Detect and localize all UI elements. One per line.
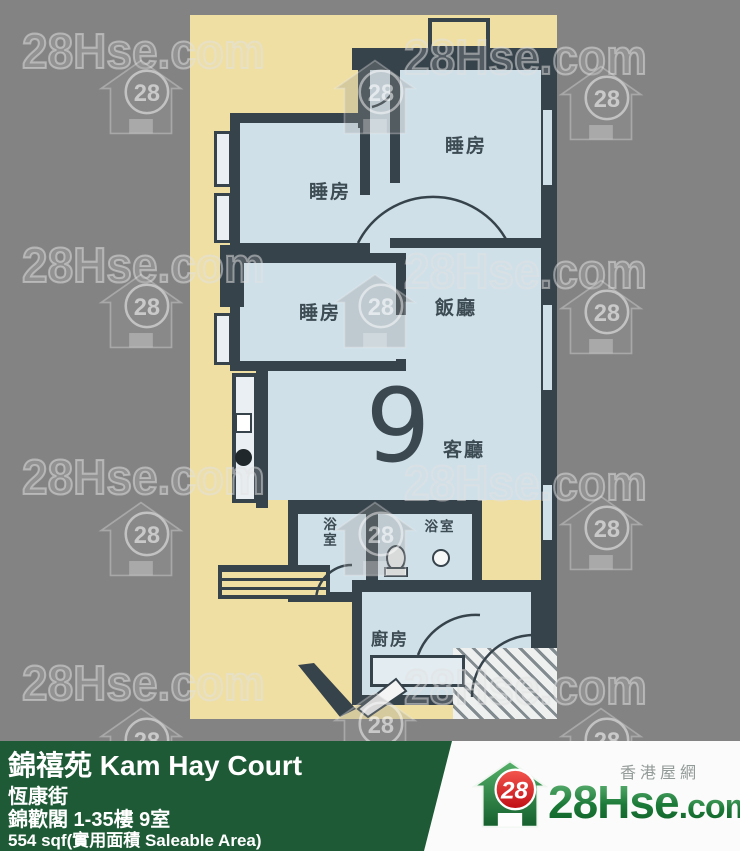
bedroom-2-door-arc bbox=[358, 197, 508, 243]
watermark-house-icon: 28 bbox=[98, 58, 184, 136]
site-branding: 28 香港屋網 28Hse.com bbox=[460, 741, 740, 851]
watermark-house-icon: 28 bbox=[98, 272, 184, 350]
svg-text:28: 28 bbox=[134, 729, 160, 741]
svg-text:28: 28 bbox=[134, 81, 160, 107]
property-info-bar: 錦禧苑 Kam Hay Court 恆康街 錦歡閣 1-35樓 9室 554 s… bbox=[0, 741, 452, 851]
watermark-house-icon: 28 bbox=[558, 494, 644, 572]
watermark-house-icon: 28 bbox=[558, 278, 644, 356]
property-title: 錦禧苑 Kam Hay Court bbox=[8, 744, 302, 784]
kitchen-door-arc bbox=[418, 615, 480, 655]
svg-text:28: 28 bbox=[594, 517, 620, 543]
watermark-house-icon: 28 bbox=[558, 64, 644, 142]
site-logo-text: 28Hse.com bbox=[548, 775, 740, 829]
watermark-house-icon: 28 bbox=[98, 706, 184, 741]
svg-text:28: 28 bbox=[500, 778, 529, 805]
page: 睡房 睡房 睡房 飯廳 客廳 廚房 浴室 浴室 9 28Hse.com 28Hs… bbox=[0, 0, 740, 851]
property-area: 554 sqf(實用面積 Saleable Area) bbox=[8, 826, 262, 851]
door-arcs-overlay bbox=[190, 15, 557, 719]
floor-plan-image: 睡房 睡房 睡房 飯廳 客廳 廚房 浴室 浴室 9 bbox=[190, 15, 557, 719]
entry-door-arc bbox=[372, 71, 398, 107]
site-name-tld: .com bbox=[679, 788, 740, 826]
svg-text:28: 28 bbox=[134, 523, 160, 549]
bottom-door-leaf bbox=[358, 679, 406, 717]
svg-text:28: 28 bbox=[594, 729, 620, 741]
svg-text:28: 28 bbox=[594, 87, 620, 113]
bathroom-door-arc bbox=[316, 565, 352, 601]
watermark-house-icon: 28 bbox=[558, 706, 644, 741]
svg-text:28: 28 bbox=[594, 301, 620, 327]
watermark-house-icon: 28 bbox=[98, 500, 184, 578]
lobby-door-arc bbox=[472, 635, 534, 697]
bottom-chamfer-wall bbox=[298, 663, 356, 717]
brand-house-icon: 28 bbox=[472, 758, 548, 830]
site-name-main: 28Hse bbox=[548, 776, 679, 828]
svg-text:28: 28 bbox=[134, 295, 160, 321]
